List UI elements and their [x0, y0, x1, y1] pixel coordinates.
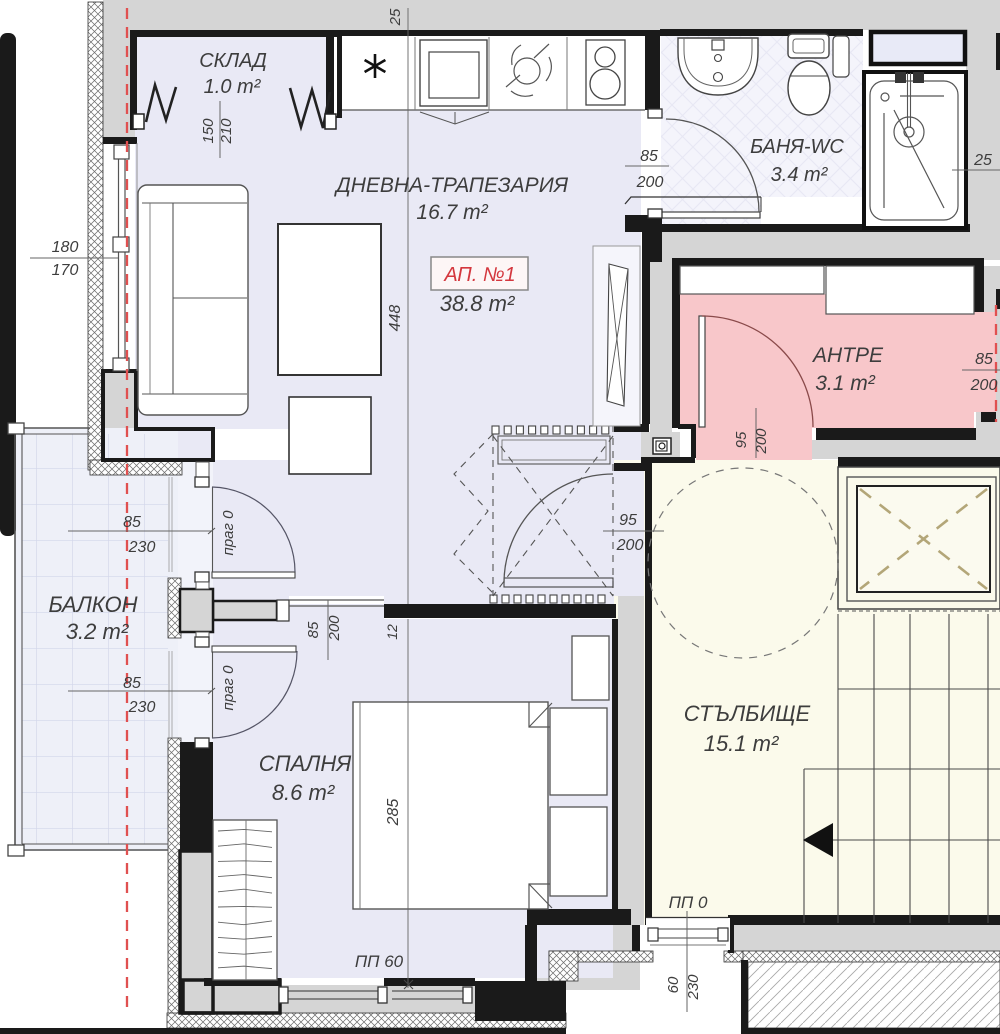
svg-text:1.0 m²: 1.0 m²	[204, 76, 262, 98]
svg-text:15.1 m²: 15.1 m²	[704, 731, 779, 756]
svg-text:200: 200	[326, 615, 343, 642]
svg-text:3.1 m²: 3.1 m²	[815, 372, 876, 395]
svg-text:60: 60	[665, 976, 682, 993]
svg-text:200: 200	[636, 174, 664, 191]
svg-text:150: 150	[200, 118, 217, 144]
svg-text:праг 0: праг 0	[220, 665, 237, 711]
svg-text:230: 230	[128, 539, 156, 556]
svg-text:25: 25	[387, 8, 404, 26]
svg-text:85: 85	[640, 148, 658, 165]
svg-text:12: 12	[384, 624, 400, 640]
svg-text:38.8 m²: 38.8 m²	[440, 291, 515, 316]
svg-text:БАНЯ-WC: БАНЯ-WC	[750, 136, 844, 158]
svg-text:ПП 60: ПП 60	[355, 952, 404, 971]
svg-text:210: 210	[218, 118, 235, 145]
svg-text:БАЛКОН: БАЛКОН	[48, 592, 137, 617]
svg-text:СКЛАД: СКЛАД	[199, 50, 267, 72]
svg-text:85: 85	[123, 514, 141, 531]
svg-text:АНТРЕ: АНТРЕ	[811, 344, 884, 367]
svg-text:170: 170	[52, 262, 79, 279]
svg-text:448: 448	[387, 305, 404, 332]
svg-text:200: 200	[616, 537, 644, 554]
svg-text:230: 230	[128, 699, 156, 716]
svg-text:85: 85	[305, 621, 322, 638]
svg-text:230: 230	[685, 974, 702, 1001]
svg-text:285: 285	[385, 799, 402, 827]
svg-text:ДНЕВНА-ТРАПЕЗАРИЯ: ДНЕВНА-ТРАПЕЗАРИЯ	[334, 174, 569, 197]
svg-text:95: 95	[733, 431, 750, 448]
svg-text:16.7 m²: 16.7 m²	[416, 201, 488, 224]
svg-text:АП. №1: АП. №1	[443, 264, 515, 286]
svg-text:200: 200	[970, 377, 998, 394]
svg-text:СПАЛНЯ: СПАЛНЯ	[259, 751, 352, 776]
svg-text:25: 25	[973, 152, 992, 169]
svg-text:СТЪЛБИЩЕ: СТЪЛБИЩЕ	[684, 701, 811, 726]
svg-text:8.6 m²: 8.6 m²	[272, 780, 335, 805]
svg-text:3.4 m²: 3.4 m²	[771, 164, 829, 186]
svg-text:ПП 0: ПП 0	[669, 893, 708, 912]
svg-text:3.2 m²: 3.2 m²	[66, 619, 129, 644]
svg-text:85: 85	[123, 675, 141, 692]
svg-text:95: 95	[619, 512, 637, 529]
svg-text:праг 0: праг 0	[220, 510, 237, 556]
svg-text:200: 200	[753, 428, 770, 455]
svg-text:180: 180	[52, 239, 79, 256]
svg-text:85: 85	[975, 351, 993, 368]
